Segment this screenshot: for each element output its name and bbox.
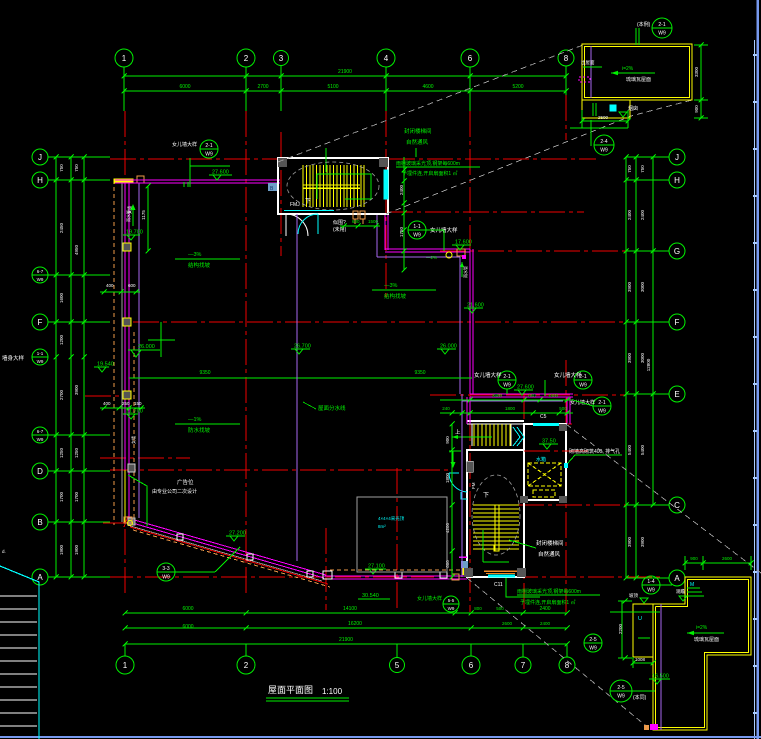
- svg-text:FM: FM: [471, 482, 476, 489]
- svg-text:3-3: 3-3: [162, 566, 169, 572]
- svg-text:21900: 21900: [339, 637, 353, 643]
- svg-text:500: 500: [559, 406, 567, 411]
- svg-text:—3%: —3%: [188, 252, 202, 258]
- svg-text:1175: 1175: [141, 210, 146, 220]
- svg-text:1700: 1700: [59, 491, 64, 502]
- svg-text:750: 750: [627, 165, 632, 173]
- svg-text:150: 150: [134, 401, 142, 406]
- svg-text:1800: 1800: [505, 406, 516, 411]
- svg-text:1-1: 1-1: [37, 351, 44, 356]
- svg-text:烟囱: 烟囱: [628, 105, 638, 112]
- svg-text:26.000: 26.000: [138, 344, 155, 350]
- svg-text:2-5: 2-5: [589, 637, 596, 643]
- svg-text:5200: 5200: [512, 84, 523, 90]
- svg-text:1750: 1750: [399, 226, 404, 237]
- svg-text:2450: 2450: [59, 222, 64, 233]
- svg-text:240: 240: [442, 406, 450, 411]
- svg-text:W9: W9: [448, 606, 455, 611]
- svg-text:2-1: 2-1: [205, 143, 212, 149]
- svg-text:W9: W9: [37, 359, 44, 364]
- svg-text:8m²: 8m²: [378, 524, 386, 529]
- svg-text:600: 600: [445, 560, 450, 568]
- svg-text:30.540: 30.540: [362, 593, 379, 599]
- svg-text:—3%: —3%: [384, 283, 398, 289]
- svg-text:6000: 6000: [182, 606, 193, 612]
- svg-text:4950: 4950: [74, 244, 79, 255]
- svg-text:i=2%: i=2%: [622, 66, 634, 72]
- svg-text:4600: 4600: [422, 84, 433, 90]
- svg-text:1: 1: [122, 54, 127, 63]
- svg-text:3000: 3000: [640, 281, 645, 292]
- svg-text:W9: W9: [205, 152, 213, 158]
- svg-text:1250: 1250: [59, 447, 64, 458]
- svg-text:D: D: [37, 467, 43, 476]
- svg-text:结构找坡: 结构找坡: [384, 292, 407, 300]
- svg-text:2: 2: [244, 54, 249, 63]
- svg-text:A: A: [674, 574, 680, 583]
- svg-text:1-4: 1-4: [647, 579, 654, 585]
- svg-text:E: E: [674, 390, 679, 399]
- svg-text:5100: 5100: [327, 84, 338, 90]
- svg-text:封闭楼梯间: 封闭楼梯间: [536, 539, 564, 547]
- svg-text:1-1: 1-1: [413, 224, 420, 230]
- svg-text:900: 900: [690, 556, 698, 561]
- svg-text:1700: 1700: [74, 491, 79, 502]
- svg-text:5400: 5400: [640, 444, 645, 455]
- svg-text:W9: W9: [647, 588, 655, 594]
- svg-text:21900: 21900: [338, 69, 352, 75]
- svg-text:H: H: [674, 176, 680, 185]
- svg-text:750: 750: [59, 164, 64, 172]
- svg-text:2-4: 2-4: [600, 139, 607, 145]
- svg-text:上: 上: [455, 428, 461, 436]
- svg-text:3900: 3900: [627, 352, 632, 363]
- svg-text:(未用): (未用): [333, 226, 347, 233]
- svg-text:3900: 3900: [627, 281, 632, 292]
- svg-text:1500: 1500: [368, 219, 379, 224]
- svg-text:1900: 1900: [59, 544, 64, 555]
- svg-text:琉璃瓦屋面: 琉璃瓦屋面: [626, 76, 651, 83]
- svg-text:结构找坡: 结构找坡: [188, 261, 211, 269]
- svg-text:2700: 2700: [257, 84, 268, 90]
- svg-text:6000: 6000: [182, 624, 193, 630]
- svg-text:6-7: 6-7: [37, 269, 44, 274]
- svg-text:600: 600: [128, 283, 136, 288]
- svg-text:W9: W9: [589, 646, 597, 652]
- svg-text:4200: 4200: [445, 522, 450, 533]
- svg-text:下: 下: [305, 198, 311, 205]
- svg-text:14100: 14100: [343, 606, 357, 612]
- svg-text:自然通风: 自然通风: [538, 550, 561, 558]
- svg-text:250: 250: [122, 401, 130, 406]
- svg-text:予埋件连,开启扇面积1 ㎡: 予埋件连,开启扇面积1 ㎡: [520, 599, 576, 606]
- svg-text:砌墙高砌筑400, 排气孔: 砌墙高砌筑400, 排气孔: [569, 448, 620, 455]
- svg-text:雨棚玻璃采光顶,钢架每600m: 雨棚玻璃采光顶,钢架每600m: [517, 588, 581, 595]
- svg-text:J: J: [675, 153, 679, 162]
- svg-text:500: 500: [496, 606, 504, 611]
- svg-text:2-5: 2-5: [617, 685, 624, 691]
- svg-text:女墙: 女墙: [130, 436, 136, 444]
- svg-text:3: 3: [279, 54, 284, 63]
- svg-text:750: 750: [640, 165, 645, 173]
- svg-text:W9: W9: [37, 277, 44, 282]
- svg-text:3900: 3900: [74, 384, 79, 395]
- svg-text:2400: 2400: [627, 209, 632, 220]
- svg-text:自然通风: 自然通风: [406, 138, 429, 146]
- svg-text:800: 800: [474, 606, 482, 611]
- svg-text:5: 5: [395, 661, 400, 670]
- svg-text:8: 8: [564, 54, 569, 63]
- svg-text:2400: 2400: [399, 184, 404, 195]
- svg-text:2400: 2400: [540, 621, 551, 626]
- svg-text:6: 6: [468, 54, 473, 63]
- svg-text:900: 900: [445, 436, 450, 444]
- svg-text:坡顶: 坡顶: [629, 592, 638, 599]
- svg-text:1200: 1200: [59, 334, 64, 345]
- svg-text:d.: d.: [2, 549, 6, 554]
- svg-text:M: M: [690, 582, 694, 588]
- svg-text:3000: 3000: [640, 352, 645, 363]
- svg-text:3900: 3900: [640, 536, 645, 547]
- svg-text:予埋件连,开启扇面积1 ㎡: 予埋件连,开启扇面积1 ㎡: [402, 170, 458, 177]
- svg-text:屋面平面图: 屋面平面图: [268, 685, 313, 695]
- svg-text:9350: 9350: [199, 370, 210, 376]
- svg-text:观瞻: 观瞻: [676, 588, 685, 595]
- svg-text:W9: W9: [658, 31, 666, 37]
- svg-text:1250: 1250: [74, 447, 79, 458]
- svg-text:W9: W9: [579, 383, 587, 389]
- svg-text:4×4×4采光顶: 4×4×4采光顶: [378, 515, 405, 522]
- svg-text:3300: 3300: [694, 66, 699, 77]
- svg-text:6-7: 6-7: [37, 429, 44, 434]
- svg-text:2500: 2500: [598, 115, 609, 120]
- svg-text:2-1: 2-1: [503, 374, 510, 380]
- svg-text:女墙: 女墙: [126, 206, 132, 214]
- svg-text:16200: 16200: [348, 621, 362, 627]
- svg-text:2: 2: [244, 661, 249, 670]
- svg-text:屋面分水线: 屋面分水线: [318, 404, 346, 412]
- svg-text:5400: 5400: [627, 444, 632, 455]
- svg-text:6000: 6000: [179, 84, 190, 90]
- svg-text:2600: 2600: [492, 393, 503, 398]
- svg-text:B: B: [37, 518, 42, 527]
- svg-text:W9: W9: [162, 575, 170, 581]
- svg-text:W9: W9: [37, 437, 44, 442]
- svg-text:1500: 1500: [548, 393, 559, 398]
- svg-text:女儿墙大样: 女儿墙大样: [474, 371, 502, 379]
- svg-text:似围?: 似围?: [333, 220, 346, 226]
- svg-text:F: F: [38, 318, 43, 327]
- svg-text:女儿墙大样: 女儿墙大样: [172, 141, 197, 148]
- svg-text:H: H: [37, 176, 43, 185]
- svg-text:1008: 1008: [635, 657, 646, 662]
- svg-text:6: 6: [469, 661, 474, 670]
- svg-text:FMJ: FMJ: [290, 202, 300, 208]
- svg-text:—1%: —1%: [188, 417, 202, 423]
- svg-text:2600: 2600: [502, 621, 513, 626]
- svg-text:水箱: 水箱: [536, 456, 546, 463]
- svg-text:W9: W9: [503, 383, 511, 389]
- svg-text:2400: 2400: [640, 209, 645, 220]
- svg-text:2-1: 2-1: [598, 400, 605, 406]
- svg-text:i=2%: i=2%: [696, 625, 708, 631]
- svg-text:(本同): (本同): [633, 694, 647, 701]
- svg-text:400: 400: [103, 401, 111, 406]
- svg-text:W9: W9: [600, 148, 608, 154]
- svg-text:C11: C11: [494, 582, 503, 588]
- svg-text:1800: 1800: [445, 472, 450, 483]
- svg-text:600: 600: [528, 393, 536, 398]
- svg-text:2700: 2700: [59, 389, 64, 400]
- svg-text:400: 400: [106, 283, 114, 288]
- svg-text:2200: 2200: [618, 623, 623, 634]
- svg-text:由专业公司二次设计: 由专业公司二次设计: [152, 488, 197, 495]
- svg-text:女儿墙大样: 女儿墙大样: [417, 595, 442, 602]
- svg-text:防水找坡: 防水找坡: [188, 426, 211, 434]
- svg-text:女儿墙大样: 女儿墙大样: [554, 371, 582, 379]
- svg-text:5-5: 5-5: [448, 598, 455, 603]
- svg-text:3900: 3900: [627, 536, 632, 547]
- svg-text:(本例): (本例): [637, 21, 651, 28]
- svg-text:7: 7: [521, 661, 526, 670]
- svg-text:2400: 2400: [539, 606, 550, 612]
- svg-text:600: 600: [352, 219, 360, 224]
- svg-text:墙身大样: 墙身大样: [2, 354, 25, 362]
- svg-text:封闭楼梯间: 封闭楼梯间: [404, 127, 432, 135]
- svg-text:G: G: [674, 247, 680, 256]
- svg-text:广告位: 广告位: [177, 478, 194, 486]
- svg-text:12800: 12800: [646, 358, 651, 371]
- svg-text:雨水管: 雨水管: [462, 266, 468, 278]
- svg-text:雨棚玻璃采光顶,钢架每600m: 雨棚玻璃采光顶,钢架每600m: [396, 160, 460, 167]
- svg-text:—2%: —2%: [426, 255, 437, 260]
- svg-text:900: 900: [694, 105, 699, 113]
- svg-text:A: A: [37, 573, 43, 582]
- svg-text:1900: 1900: [74, 544, 79, 555]
- svg-text:2-1: 2-1: [658, 22, 665, 28]
- svg-text:W9: W9: [598, 409, 606, 415]
- svg-text:U: U: [638, 616, 642, 622]
- svg-text:1:100: 1:100: [322, 687, 343, 696]
- svg-text:9350: 9350: [414, 370, 425, 376]
- svg-text:琉璃瓦屋面: 琉璃瓦屋面: [694, 636, 719, 643]
- svg-text:下: 下: [483, 492, 489, 499]
- svg-text:出屋面: 出屋面: [581, 59, 595, 66]
- svg-text:1: 1: [123, 661, 128, 670]
- svg-text:4: 4: [384, 54, 389, 63]
- svg-text:C5: C5: [540, 414, 547, 420]
- svg-text:W9: W9: [617, 694, 625, 700]
- svg-text:W9: W9: [413, 233, 421, 239]
- svg-text:J: J: [38, 153, 42, 162]
- svg-text:2600: 2600: [722, 556, 733, 561]
- svg-text:C: C: [674, 501, 680, 510]
- svg-text:1600: 1600: [59, 292, 64, 303]
- svg-text:750: 750: [74, 164, 79, 172]
- svg-text:F: F: [675, 318, 680, 327]
